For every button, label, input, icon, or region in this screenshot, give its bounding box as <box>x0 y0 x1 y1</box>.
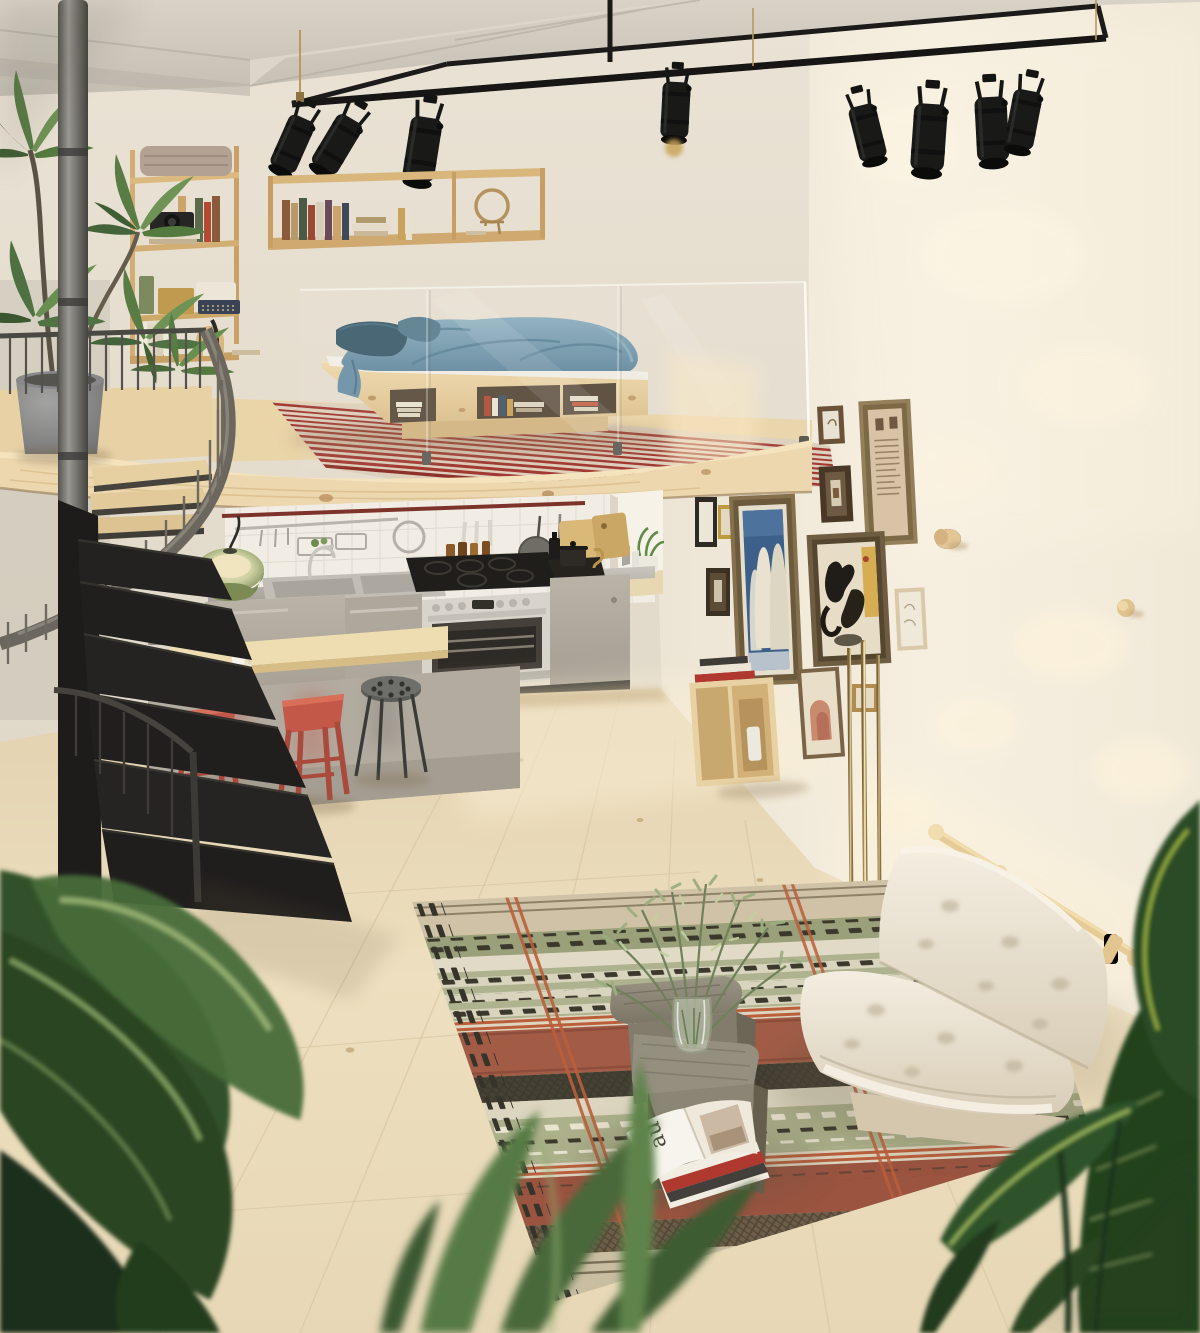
picture-frame <box>817 405 845 444</box>
picture-frame <box>706 568 730 616</box>
dancers-artwork <box>807 531 892 667</box>
picture-frame <box>894 587 927 650</box>
folded-blanket <box>140 146 232 176</box>
glass-railing <box>300 281 810 474</box>
picture-frame <box>819 465 854 523</box>
oven-display <box>472 600 494 609</box>
railing-post <box>193 752 198 902</box>
cutting-board <box>591 512 630 560</box>
picture-frame <box>695 497 717 547</box>
scene-canvas: au <box>0 0 1200 1333</box>
loft-apartment-photo: au <box>0 0 1200 1333</box>
picture-frame-ornate-tall <box>858 399 918 547</box>
mug-in-shelf <box>746 726 761 761</box>
picture-frame <box>797 667 845 760</box>
warm-lens-glow <box>665 139 683 157</box>
